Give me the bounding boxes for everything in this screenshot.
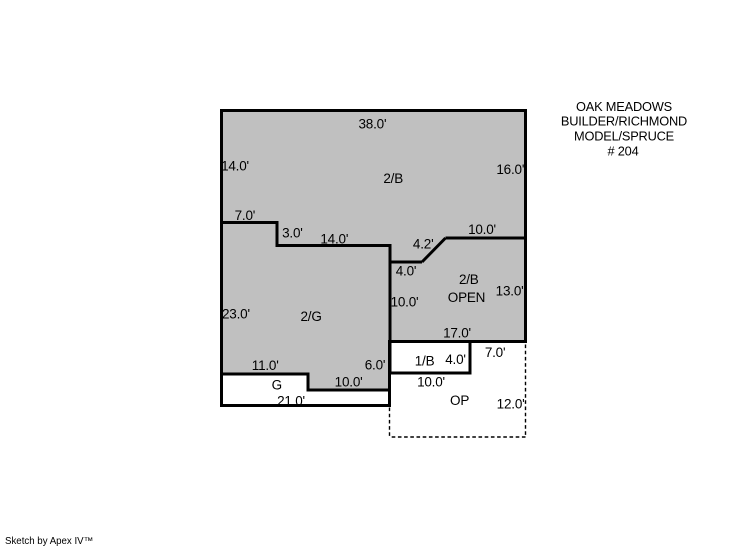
svg-text:10.0': 10.0' xyxy=(417,375,445,390)
svg-text:10.0': 10.0' xyxy=(468,222,496,237)
svg-text:7.0': 7.0' xyxy=(235,208,256,223)
svg-text:12.0': 12.0' xyxy=(497,397,525,412)
svg-text:7.0': 7.0' xyxy=(485,345,506,360)
svg-text:2/B: 2/B xyxy=(383,171,403,186)
svg-text:MODEL/SPRUCE: MODEL/SPRUCE xyxy=(574,128,674,143)
svg-text:17.0': 17.0' xyxy=(443,326,471,341)
svg-text:OP: OP xyxy=(450,393,469,408)
svg-text:4.0': 4.0' xyxy=(396,264,417,279)
svg-text:2/G: 2/G xyxy=(301,309,322,324)
svg-text:23.0': 23.0' xyxy=(222,306,250,321)
svg-text:Sketch by Apex IV™: Sketch by Apex IV™ xyxy=(5,536,93,547)
svg-text:11.0': 11.0' xyxy=(252,358,279,373)
svg-text:3.0': 3.0' xyxy=(282,226,303,241)
svg-text:2/B: 2/B xyxy=(459,272,479,287)
svg-text:10.0': 10.0' xyxy=(391,295,419,310)
svg-text:OPEN: OPEN xyxy=(448,290,485,305)
svg-text:6.0': 6.0' xyxy=(365,358,386,373)
svg-text:16.0': 16.0' xyxy=(496,162,524,177)
svg-text:G: G xyxy=(272,378,282,393)
svg-text:38.0': 38.0' xyxy=(358,117,386,132)
svg-text:13.0': 13.0' xyxy=(496,284,524,299)
svg-text:14.0': 14.0' xyxy=(221,158,249,173)
svg-text:4.2': 4.2' xyxy=(413,237,434,252)
svg-text:# 204: # 204 xyxy=(607,143,638,158)
svg-text:14.0': 14.0' xyxy=(320,231,348,246)
svg-text:OAK MEADOWS: OAK MEADOWS xyxy=(576,99,672,114)
svg-text:BUILDER/RICHMOND: BUILDER/RICHMOND xyxy=(561,114,687,129)
svg-text:10.0': 10.0' xyxy=(335,375,363,390)
svg-text:4.0': 4.0' xyxy=(445,352,466,367)
svg-text:1/B: 1/B xyxy=(415,354,435,369)
svg-text:21.0': 21.0' xyxy=(277,394,305,409)
